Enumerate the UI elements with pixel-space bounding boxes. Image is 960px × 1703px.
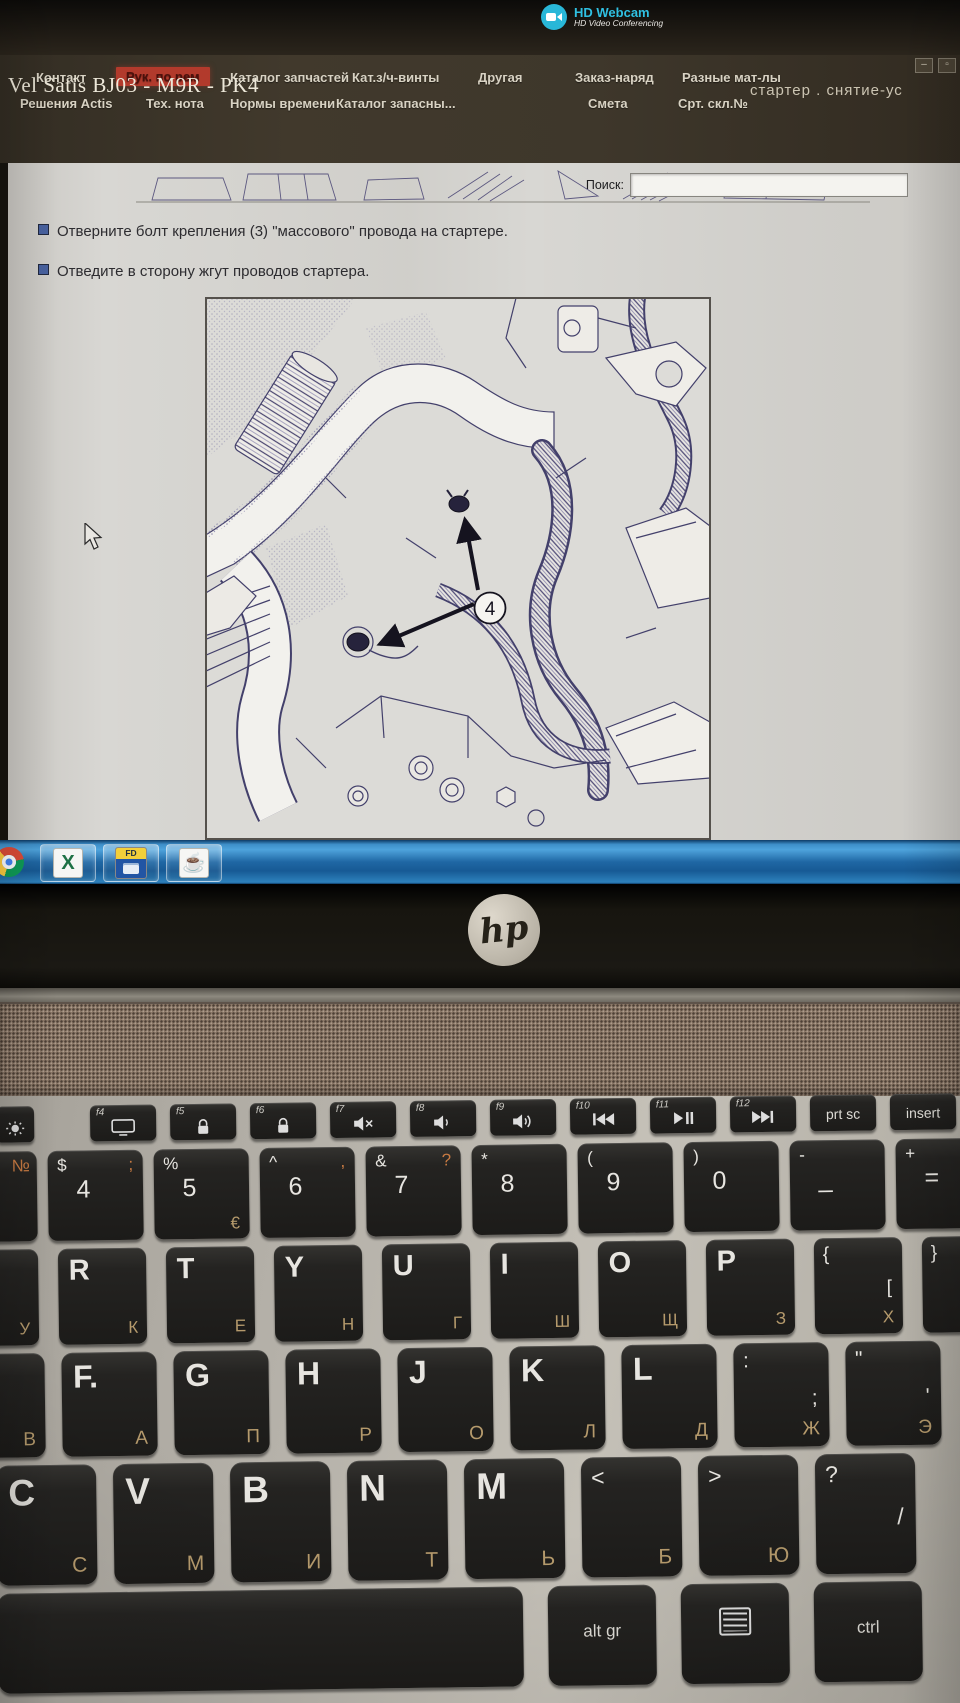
keyboard-row-space: alt grctrl xyxy=(0,1581,923,1694)
key-prt-sc: prt sc xyxy=(810,1094,876,1131)
key-v: VМ xyxy=(113,1463,215,1584)
brightness-icon xyxy=(0,1120,34,1142)
key-i: IШ xyxy=(490,1242,579,1339)
engine-diagram: 4 xyxy=(205,297,711,840)
webcam-subtitle: HD Video Conferencing xyxy=(574,19,663,28)
fd-app-icon[interactable]: FD xyxy=(103,844,159,882)
key--: += xyxy=(895,1138,960,1229)
instruction-step: Отверните болт крепления (3) "массового"… xyxy=(38,223,508,240)
keyboard-row-number: №$;4%5€^,6&?7*8(9)0-_+= xyxy=(0,1138,960,1242)
key-б: <Б xyxy=(581,1456,683,1577)
key-4: $;4 xyxy=(48,1150,144,1241)
key-space xyxy=(0,1586,524,1693)
menu-item-2[interactable]: Нормы времени xyxy=(230,96,335,111)
next-track-icon xyxy=(730,1109,796,1129)
key-lock: f6 xyxy=(250,1102,316,1139)
chrome-icon[interactable] xyxy=(0,844,34,880)
key-speaker-high: f9 xyxy=(490,1099,556,1136)
key-alt-gr: alt gr xyxy=(548,1585,657,1686)
key-7: &?7 xyxy=(365,1145,461,1236)
java-icon[interactable]: ☕ xyxy=(166,844,222,882)
key-next-track: f12 xyxy=(730,1096,796,1133)
laptop-bottom-bezel: hp xyxy=(0,884,960,988)
menu-bar-row2: Решения ActisТех. нотаНормы времениКатал… xyxy=(0,96,960,116)
restore-button[interactable]: ▫ xyxy=(938,58,956,73)
key-ю: >Ю xyxy=(698,1455,800,1576)
key-c: CС xyxy=(0,1464,98,1585)
key-b: BИ xyxy=(230,1461,332,1582)
menu-item-0[interactable]: Решения Actis xyxy=(20,96,112,111)
key-в: В xyxy=(0,1353,46,1458)
key-t: TЕ xyxy=(166,1246,255,1343)
key-prev-track: f10 xyxy=(570,1098,636,1135)
key-э: "'Э xyxy=(845,1341,941,1446)
bullet-icon xyxy=(38,264,49,275)
display-icon xyxy=(90,1118,156,1141)
search-label: Поиск: xyxy=(574,178,624,192)
keyboard-row-top: EУRКTЕYНUГIШOЩPЗ{[Х}] xyxy=(0,1236,960,1347)
key-u: UГ xyxy=(382,1243,471,1340)
key-display: f4 xyxy=(90,1104,156,1141)
key-f-: F.А xyxy=(61,1352,157,1457)
prev-track-icon xyxy=(570,1111,636,1131)
window-controls: – ▫ xyxy=(915,58,956,73)
search-input[interactable] xyxy=(630,173,908,197)
key-insert: insert xyxy=(890,1093,956,1130)
key-speaker-mute: f7 xyxy=(330,1101,396,1138)
menu-item-4[interactable]: Смета xyxy=(588,96,628,111)
key-key-9: }] xyxy=(922,1236,960,1333)
key-g: GП xyxy=(173,1350,269,1455)
breadcrumb-context: стартер . снятие-ус xyxy=(750,82,903,99)
key-0: )0 xyxy=(683,1141,779,1232)
key-play-pause: f11 xyxy=(650,1097,716,1134)
speaker-mute-icon xyxy=(330,1115,396,1137)
key--: -_ xyxy=(789,1139,885,1230)
key-ж: :;Ж xyxy=(733,1342,829,1447)
webcam-sticker: HD Webcam HD Video Conferencing xyxy=(541,2,691,32)
keyboard-row-home: ВF.АGПHРJОKЛLД:;Ж"'Э xyxy=(0,1341,942,1459)
minimize-button[interactable]: – xyxy=(915,58,933,73)
app-header: КонтактРук. по ремКаталог запчастейКат.з… xyxy=(0,55,960,163)
key-p: PЗ xyxy=(706,1239,795,1336)
windows-taskbar: X FD ☕ xyxy=(0,840,960,884)
menu-item-3[interactable]: Каталог запасны... xyxy=(336,96,456,111)
play-pause-icon xyxy=(650,1110,716,1130)
lock-icon xyxy=(170,1117,236,1140)
key-6: ^,6 xyxy=(259,1147,355,1238)
key-h: HР xyxy=(285,1348,381,1453)
key-m: MЬ xyxy=(464,1458,566,1579)
key-8: *8 xyxy=(471,1144,567,1235)
laptop-hinge xyxy=(0,988,960,1002)
laptop-deck: f4f5f6f7f8f9f10f11f12prt scinsert №$;4%5… xyxy=(0,1002,960,1703)
lock-icon xyxy=(250,1116,316,1139)
key-ctrl: ctrl xyxy=(814,1581,923,1682)
mouse-cursor xyxy=(84,523,104,551)
key-e: EУ xyxy=(0,1249,39,1346)
keyboard: f4f5f6f7f8f9f10f11f12prt scinsert №$;4%5… xyxy=(0,1087,960,1703)
key-n: NТ xyxy=(347,1459,449,1580)
document-area: Поиск: Отверните болт крепления (3) "мас… xyxy=(8,163,960,840)
key-key-7: ?/ xyxy=(815,1453,917,1574)
figure-callout-4: 4 xyxy=(485,599,496,620)
speaker-high-icon xyxy=(490,1113,556,1135)
page-title: Vel Satis BJ03 - M9R - PK4 xyxy=(8,73,259,98)
key-k: KЛ xyxy=(509,1345,605,1450)
excel-icon[interactable]: X xyxy=(40,844,96,882)
speaker-low-icon xyxy=(410,1114,476,1136)
hp-logo: hp xyxy=(464,890,543,969)
laptop-top-bezel: HD Webcam HD Video Conferencing xyxy=(0,0,960,55)
key-9: (9 xyxy=(577,1142,673,1233)
keyboard-row-bottom: CСVМBИNТMЬ<Б>Ю?/ xyxy=(0,1453,916,1586)
key-5: %5€ xyxy=(153,1148,249,1239)
menu-key-icon xyxy=(681,1621,789,1623)
webcam-icon xyxy=(541,4,567,30)
key-lock: f5 xyxy=(170,1103,236,1140)
menu-item-4[interactable]: Другая xyxy=(478,70,523,85)
bullet-icon xyxy=(38,224,49,235)
menu-item-3[interactable]: Кат.з/ч-винты xyxy=(352,70,439,85)
key-l: LД xyxy=(621,1344,717,1449)
menu-item-5[interactable]: Срт. скл.№ xyxy=(678,96,748,111)
speaker-grille xyxy=(0,1002,960,1096)
menu-item-1[interactable]: Тех. нота xyxy=(146,96,204,111)
key-speaker-low: f8 xyxy=(410,1100,476,1137)
key-r: RК xyxy=(58,1248,147,1345)
key-brightness xyxy=(0,1106,34,1143)
instruction-step: Отведите в сторону жгут проводов стартер… xyxy=(38,263,369,280)
webcam-title: HD Webcam xyxy=(574,6,663,20)
menu-item-5[interactable]: Заказ-наряд xyxy=(575,70,654,85)
key-j: JО xyxy=(397,1347,493,1452)
key-o: OЩ xyxy=(598,1240,687,1337)
keyboard-row-function: f4f5f6f7f8f9f10f11f12prt scinsert xyxy=(0,1093,956,1142)
laptop-photo: HD Webcam HD Video Conferencing КонтактР… xyxy=(0,0,960,1703)
key-key-0: № xyxy=(0,1151,38,1242)
key-х: {[Х xyxy=(814,1237,903,1334)
key-y: YН xyxy=(274,1245,363,1342)
key-context-menu xyxy=(681,1583,790,1684)
